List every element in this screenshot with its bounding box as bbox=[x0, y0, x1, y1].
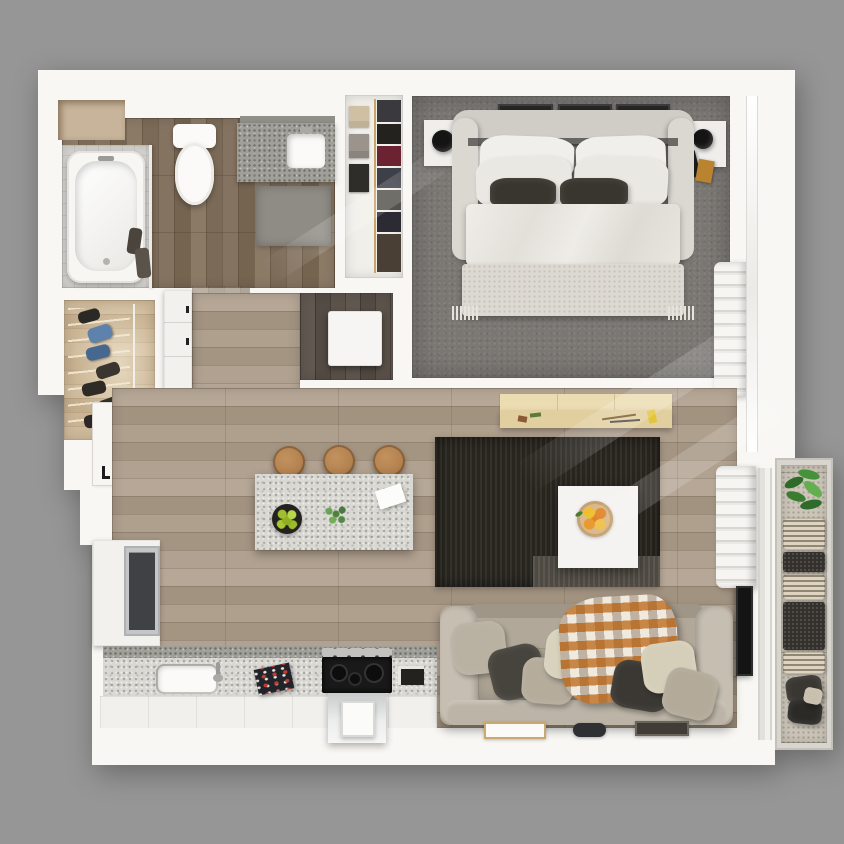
desk-eraser bbox=[518, 415, 528, 422]
bath-niche bbox=[58, 100, 125, 140]
blanket-fringe-right bbox=[668, 306, 694, 320]
island-plant bbox=[322, 500, 350, 528]
bed-duvet bbox=[466, 204, 680, 266]
sink-faucet-base bbox=[213, 674, 223, 682]
hanging-clothes-5 bbox=[377, 190, 401, 210]
stove-knob-strip bbox=[322, 648, 392, 657]
linen-towels-bedroom bbox=[714, 262, 748, 396]
desk-top bbox=[500, 394, 672, 410]
hallway-floor bbox=[192, 293, 300, 393]
folded-clothes-black bbox=[349, 164, 369, 192]
vanity-sink bbox=[287, 134, 325, 168]
bar-stool-3 bbox=[373, 445, 405, 477]
desk-seam-1 bbox=[557, 394, 558, 410]
small-appliance bbox=[398, 666, 424, 685]
toilet-bowl bbox=[175, 143, 214, 205]
burner-3 bbox=[348, 672, 362, 686]
cabinet-seam-2 bbox=[164, 356, 192, 357]
balcony-plant bbox=[782, 468, 826, 516]
washer-unit bbox=[328, 311, 382, 366]
fruit-lemons bbox=[581, 505, 609, 533]
hanging-clothes-1 bbox=[377, 100, 401, 122]
desk-seam-2 bbox=[614, 394, 615, 410]
tv-screen bbox=[736, 586, 753, 676]
tub-drain bbox=[103, 258, 110, 265]
blanket-fringe-left bbox=[452, 306, 478, 320]
window-right-wall bbox=[746, 96, 758, 452]
kitchen-sink bbox=[156, 664, 218, 694]
remote-control bbox=[573, 723, 606, 737]
lounger-cushion-striped-1 bbox=[783, 518, 825, 550]
hanging-clothes-7 bbox=[377, 234, 401, 272]
cabinet-handle-1 bbox=[186, 306, 189, 313]
closet-rod bbox=[374, 99, 376, 273]
burner-1 bbox=[330, 664, 348, 682]
lounger-cushion-dark-1 bbox=[783, 552, 825, 572]
limes bbox=[275, 507, 299, 531]
bath-mat bbox=[256, 186, 331, 246]
entry-door-handle-foot bbox=[102, 476, 110, 479]
lounger-cushion-dark-2 bbox=[783, 602, 825, 650]
hanging-clothes-4 bbox=[377, 168, 401, 188]
fridge-doors bbox=[129, 552, 155, 630]
kitchen-cabinet-face bbox=[100, 696, 437, 728]
table-lamp-right bbox=[693, 129, 713, 149]
plan-right-spur bbox=[775, 395, 795, 460]
burner-2 bbox=[364, 663, 384, 683]
linen-towels-living bbox=[716, 466, 756, 588]
floor-plan-render bbox=[0, 0, 844, 844]
hanging-clothes-3 bbox=[377, 146, 401, 166]
lounger-cushion-striped-2 bbox=[783, 574, 825, 600]
balcony-door-glass bbox=[758, 468, 772, 740]
oven-door bbox=[341, 701, 375, 737]
floor-mat-dark bbox=[635, 721, 689, 736]
hanging-clothes-6 bbox=[377, 212, 401, 232]
hanging-robe-2 bbox=[134, 247, 151, 278]
bed-foot-blanket bbox=[462, 264, 684, 316]
sink-faucet-bath bbox=[300, 127, 312, 133]
vanity-mirror-strip bbox=[240, 116, 335, 123]
folded-clothes-gray bbox=[349, 134, 369, 158]
bathtub-basin bbox=[75, 161, 137, 271]
table-lamp-left bbox=[432, 130, 454, 152]
folded-clothes-beige bbox=[349, 106, 369, 127]
lounger-cushion-striped-3 bbox=[783, 652, 825, 674]
hanging-clothes-2 bbox=[377, 124, 401, 144]
bar-stool-2 bbox=[323, 445, 355, 477]
cabinet-handle-2 bbox=[186, 338, 189, 345]
tub-faucet bbox=[98, 156, 114, 161]
floor-art-tray bbox=[484, 722, 546, 739]
cabinet-seam-1 bbox=[164, 322, 192, 323]
